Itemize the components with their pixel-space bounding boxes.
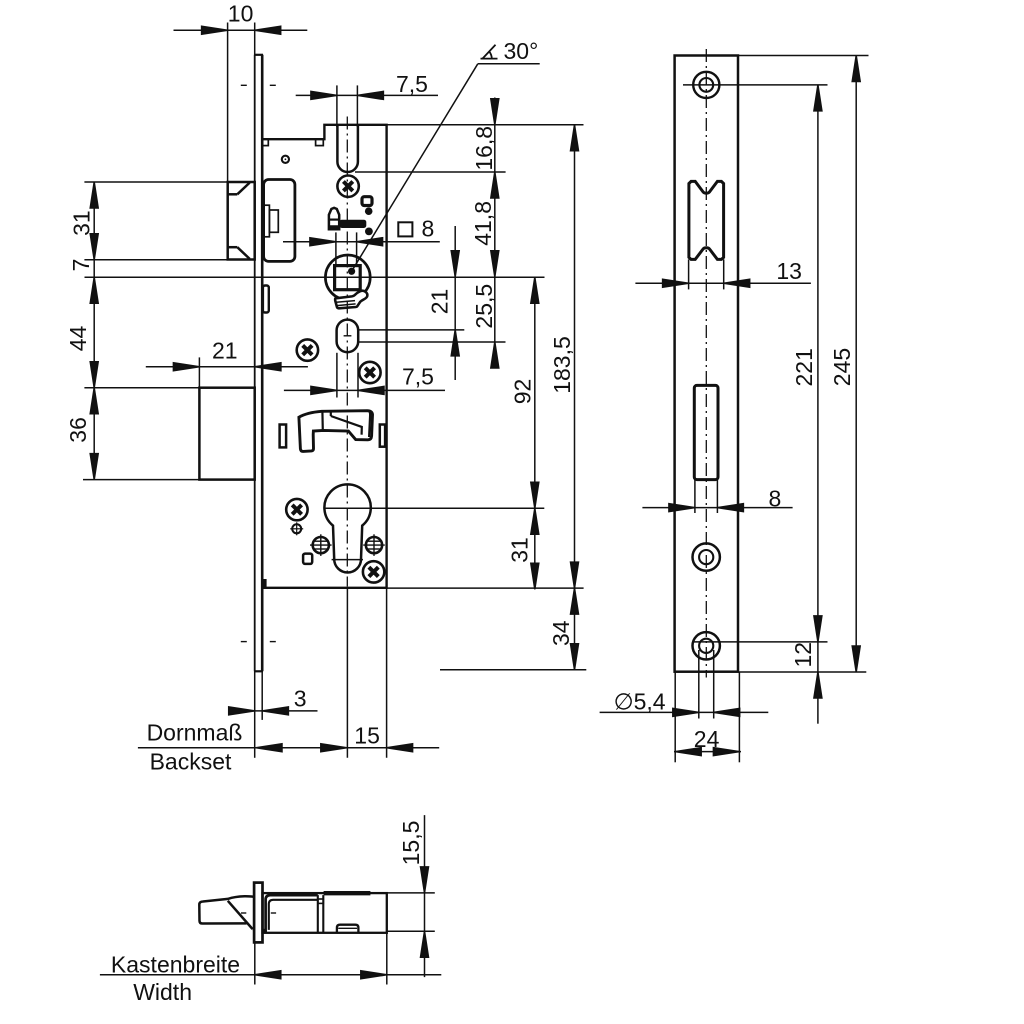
svg-text:8: 8 <box>769 486 782 512</box>
svg-text:3: 3 <box>294 686 307 712</box>
svg-text:15,5: 15,5 <box>398 821 424 866</box>
svg-text:21: 21 <box>212 338 238 364</box>
svg-text:34: 34 <box>548 620 574 646</box>
svg-text:Dornmaß: Dornmaß <box>147 720 243 746</box>
svg-text:36: 36 <box>65 417 91 443</box>
svg-text:7,5: 7,5 <box>402 364 434 390</box>
svg-text:25,5: 25,5 <box>471 284 497 329</box>
svg-text:∅5,4: ∅5,4 <box>614 689 666 715</box>
svg-text:7: 7 <box>68 259 94 272</box>
svg-text:31: 31 <box>69 210 95 236</box>
svg-text:Kastenbreite: Kastenbreite <box>111 952 240 978</box>
svg-text:13: 13 <box>776 258 802 284</box>
svg-text:92: 92 <box>509 379 535 405</box>
svg-text:30°: 30° <box>504 38 539 64</box>
svg-text:Backset: Backset <box>150 749 232 775</box>
svg-text:21: 21 <box>426 289 452 315</box>
svg-text:7,5: 7,5 <box>396 71 428 97</box>
svg-text:16,8: 16,8 <box>471 126 497 171</box>
svg-text:31: 31 <box>507 537 533 563</box>
svg-text:12: 12 <box>790 642 816 668</box>
svg-text:221: 221 <box>791 348 817 386</box>
svg-text:8: 8 <box>422 216 435 242</box>
svg-text:183,5: 183,5 <box>549 336 575 394</box>
svg-text:10: 10 <box>228 1 254 27</box>
svg-text:245: 245 <box>829 348 855 386</box>
svg-text:Width: Width <box>133 979 192 1005</box>
svg-text:24: 24 <box>694 726 720 752</box>
svg-text:15: 15 <box>354 723 380 749</box>
svg-text:44: 44 <box>65 326 91 352</box>
svg-text:41,8: 41,8 <box>470 201 496 246</box>
